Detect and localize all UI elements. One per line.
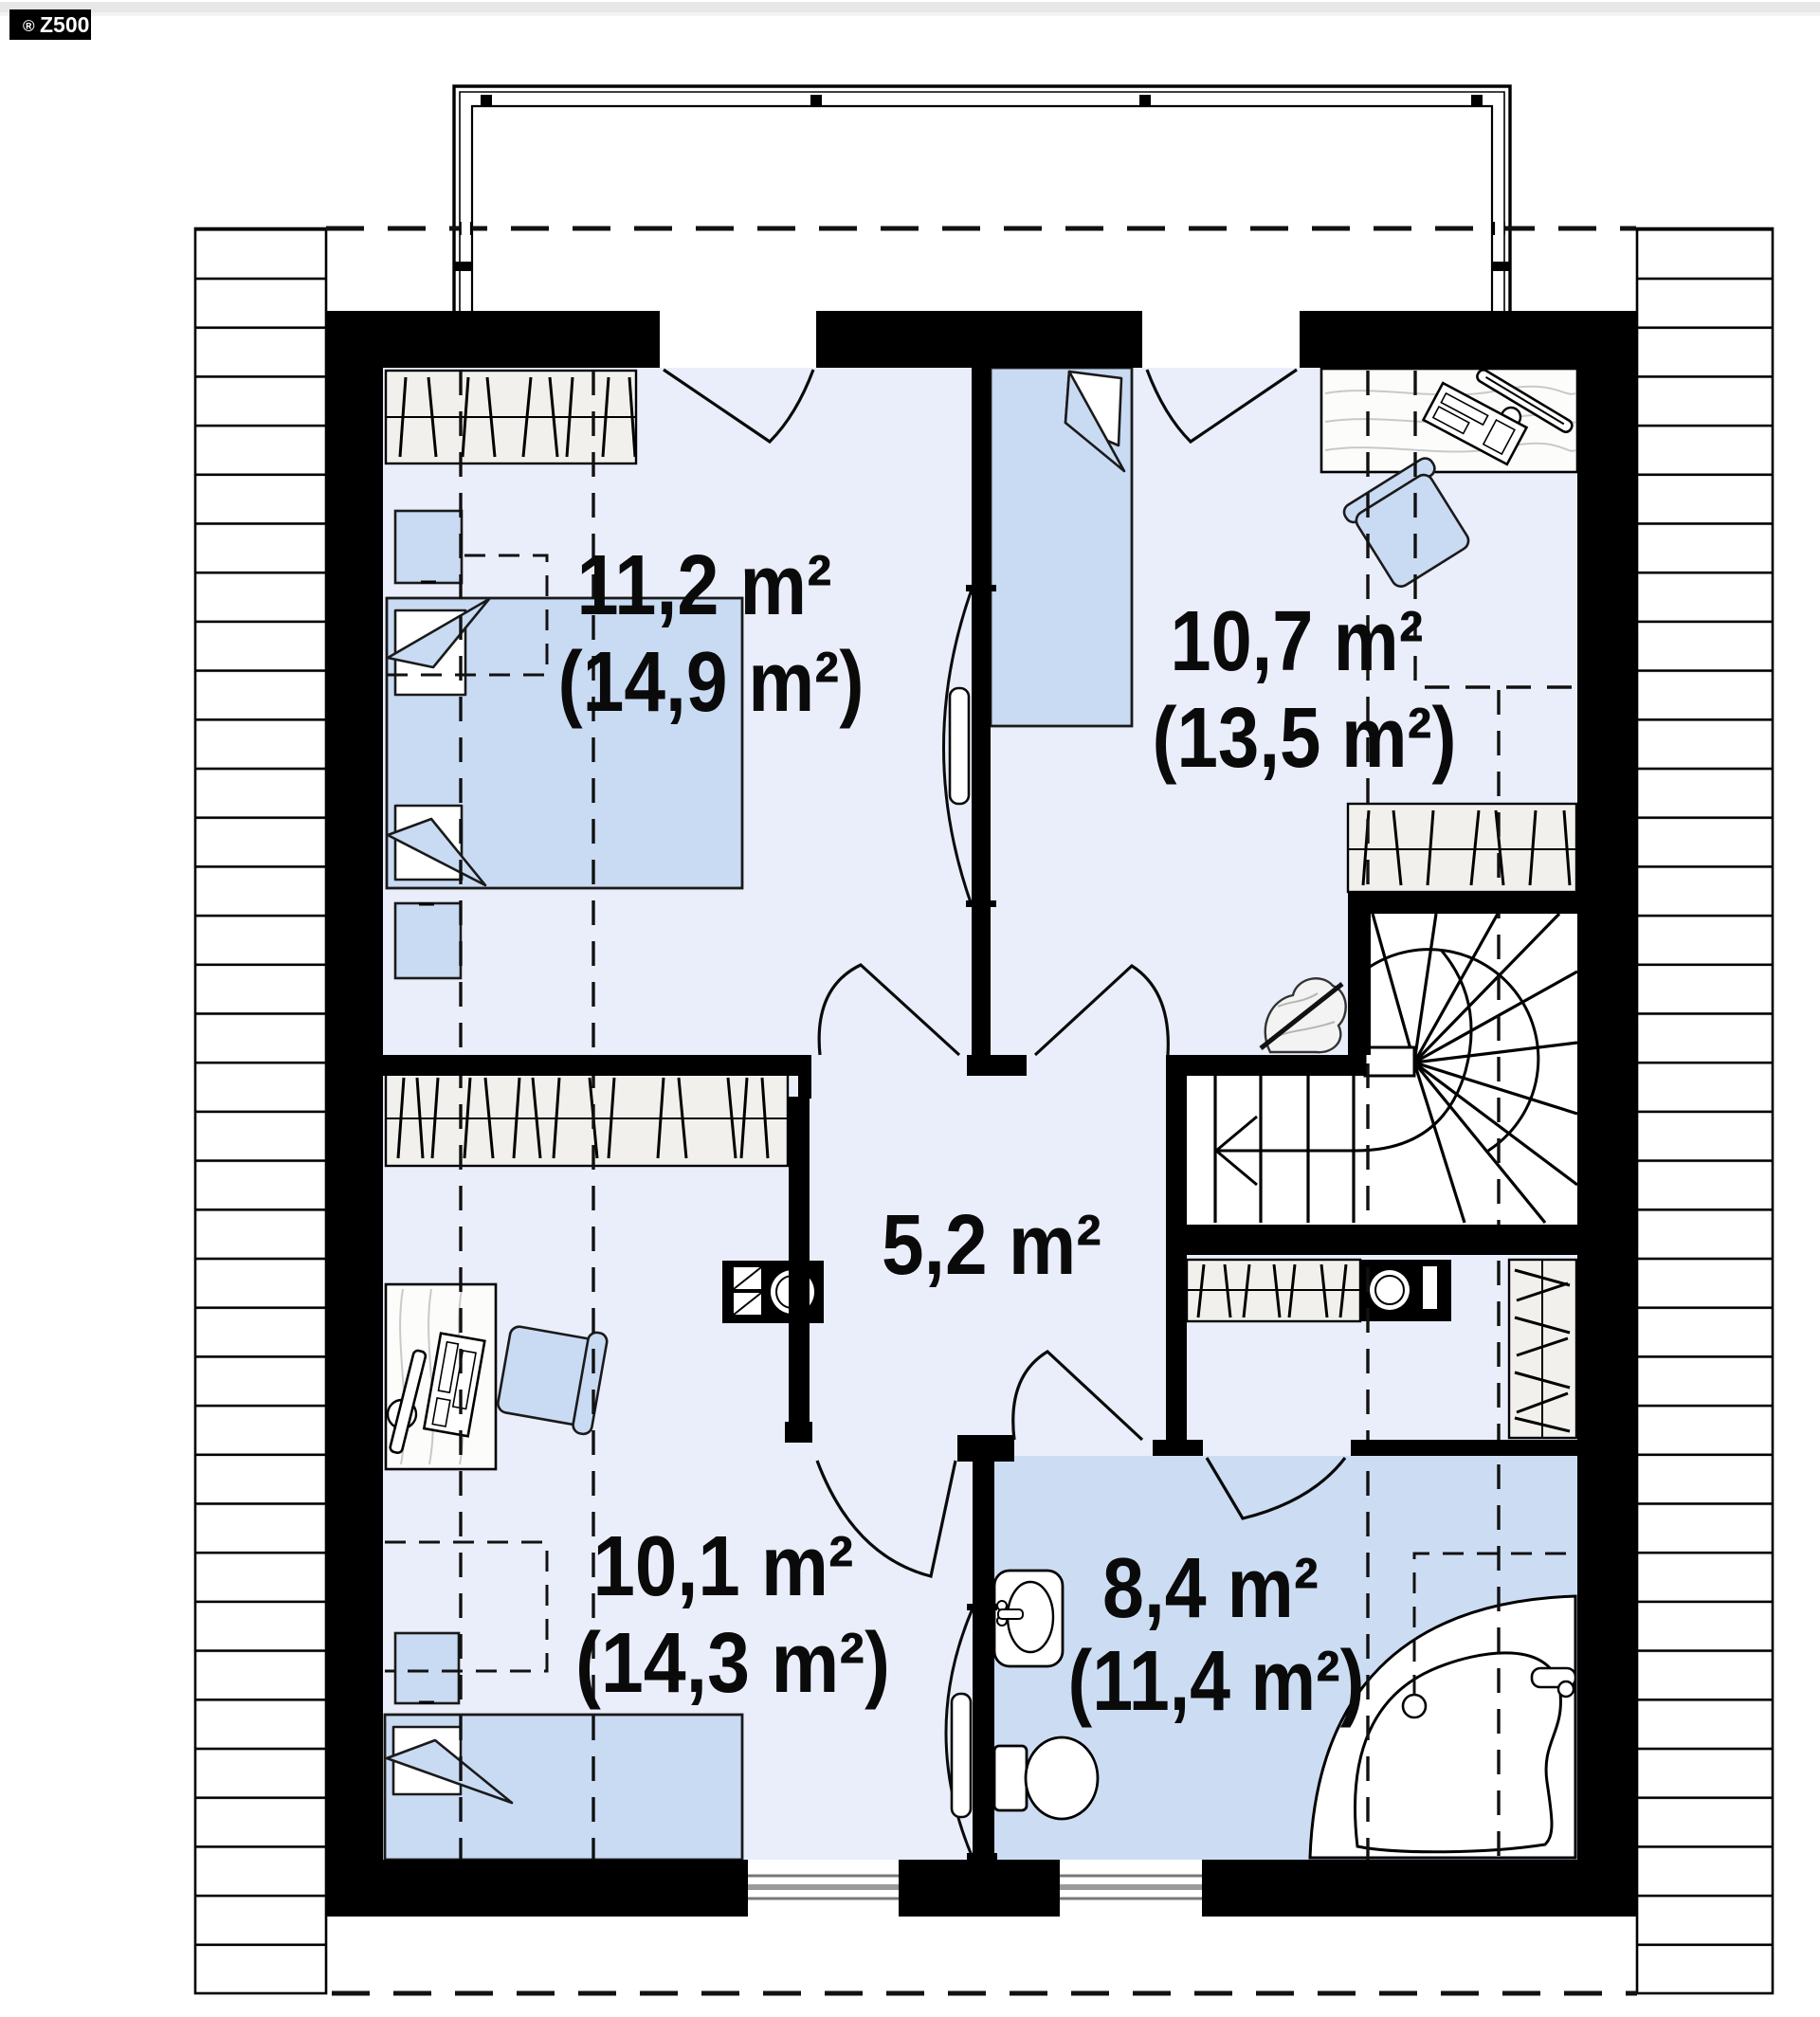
svg-text:(14,3 m²): (14,3 m²) — [575, 1616, 890, 1711]
svg-text:5,2 m²: 5,2 m² — [882, 1198, 1101, 1293]
svg-text:(14,9 m²): (14,9 m²) — [558, 635, 864, 730]
svg-text:(11,4 m²): (11,4 m²) — [1068, 1634, 1365, 1729]
svg-text:Z500: Z500 — [40, 12, 89, 37]
svg-text:8,4 m²: 8,4 m² — [1102, 1541, 1319, 1636]
svg-text:10,1 m²: 10,1 m² — [593, 1519, 854, 1614]
svg-text:10,7 m²: 10,7 m² — [1171, 594, 1424, 689]
svg-text:(13,5 m²): (13,5 m²) — [1153, 691, 1457, 786]
svg-text:®: ® — [23, 17, 35, 35]
svg-text:11,2 m²: 11,2 m² — [577, 538, 832, 633]
